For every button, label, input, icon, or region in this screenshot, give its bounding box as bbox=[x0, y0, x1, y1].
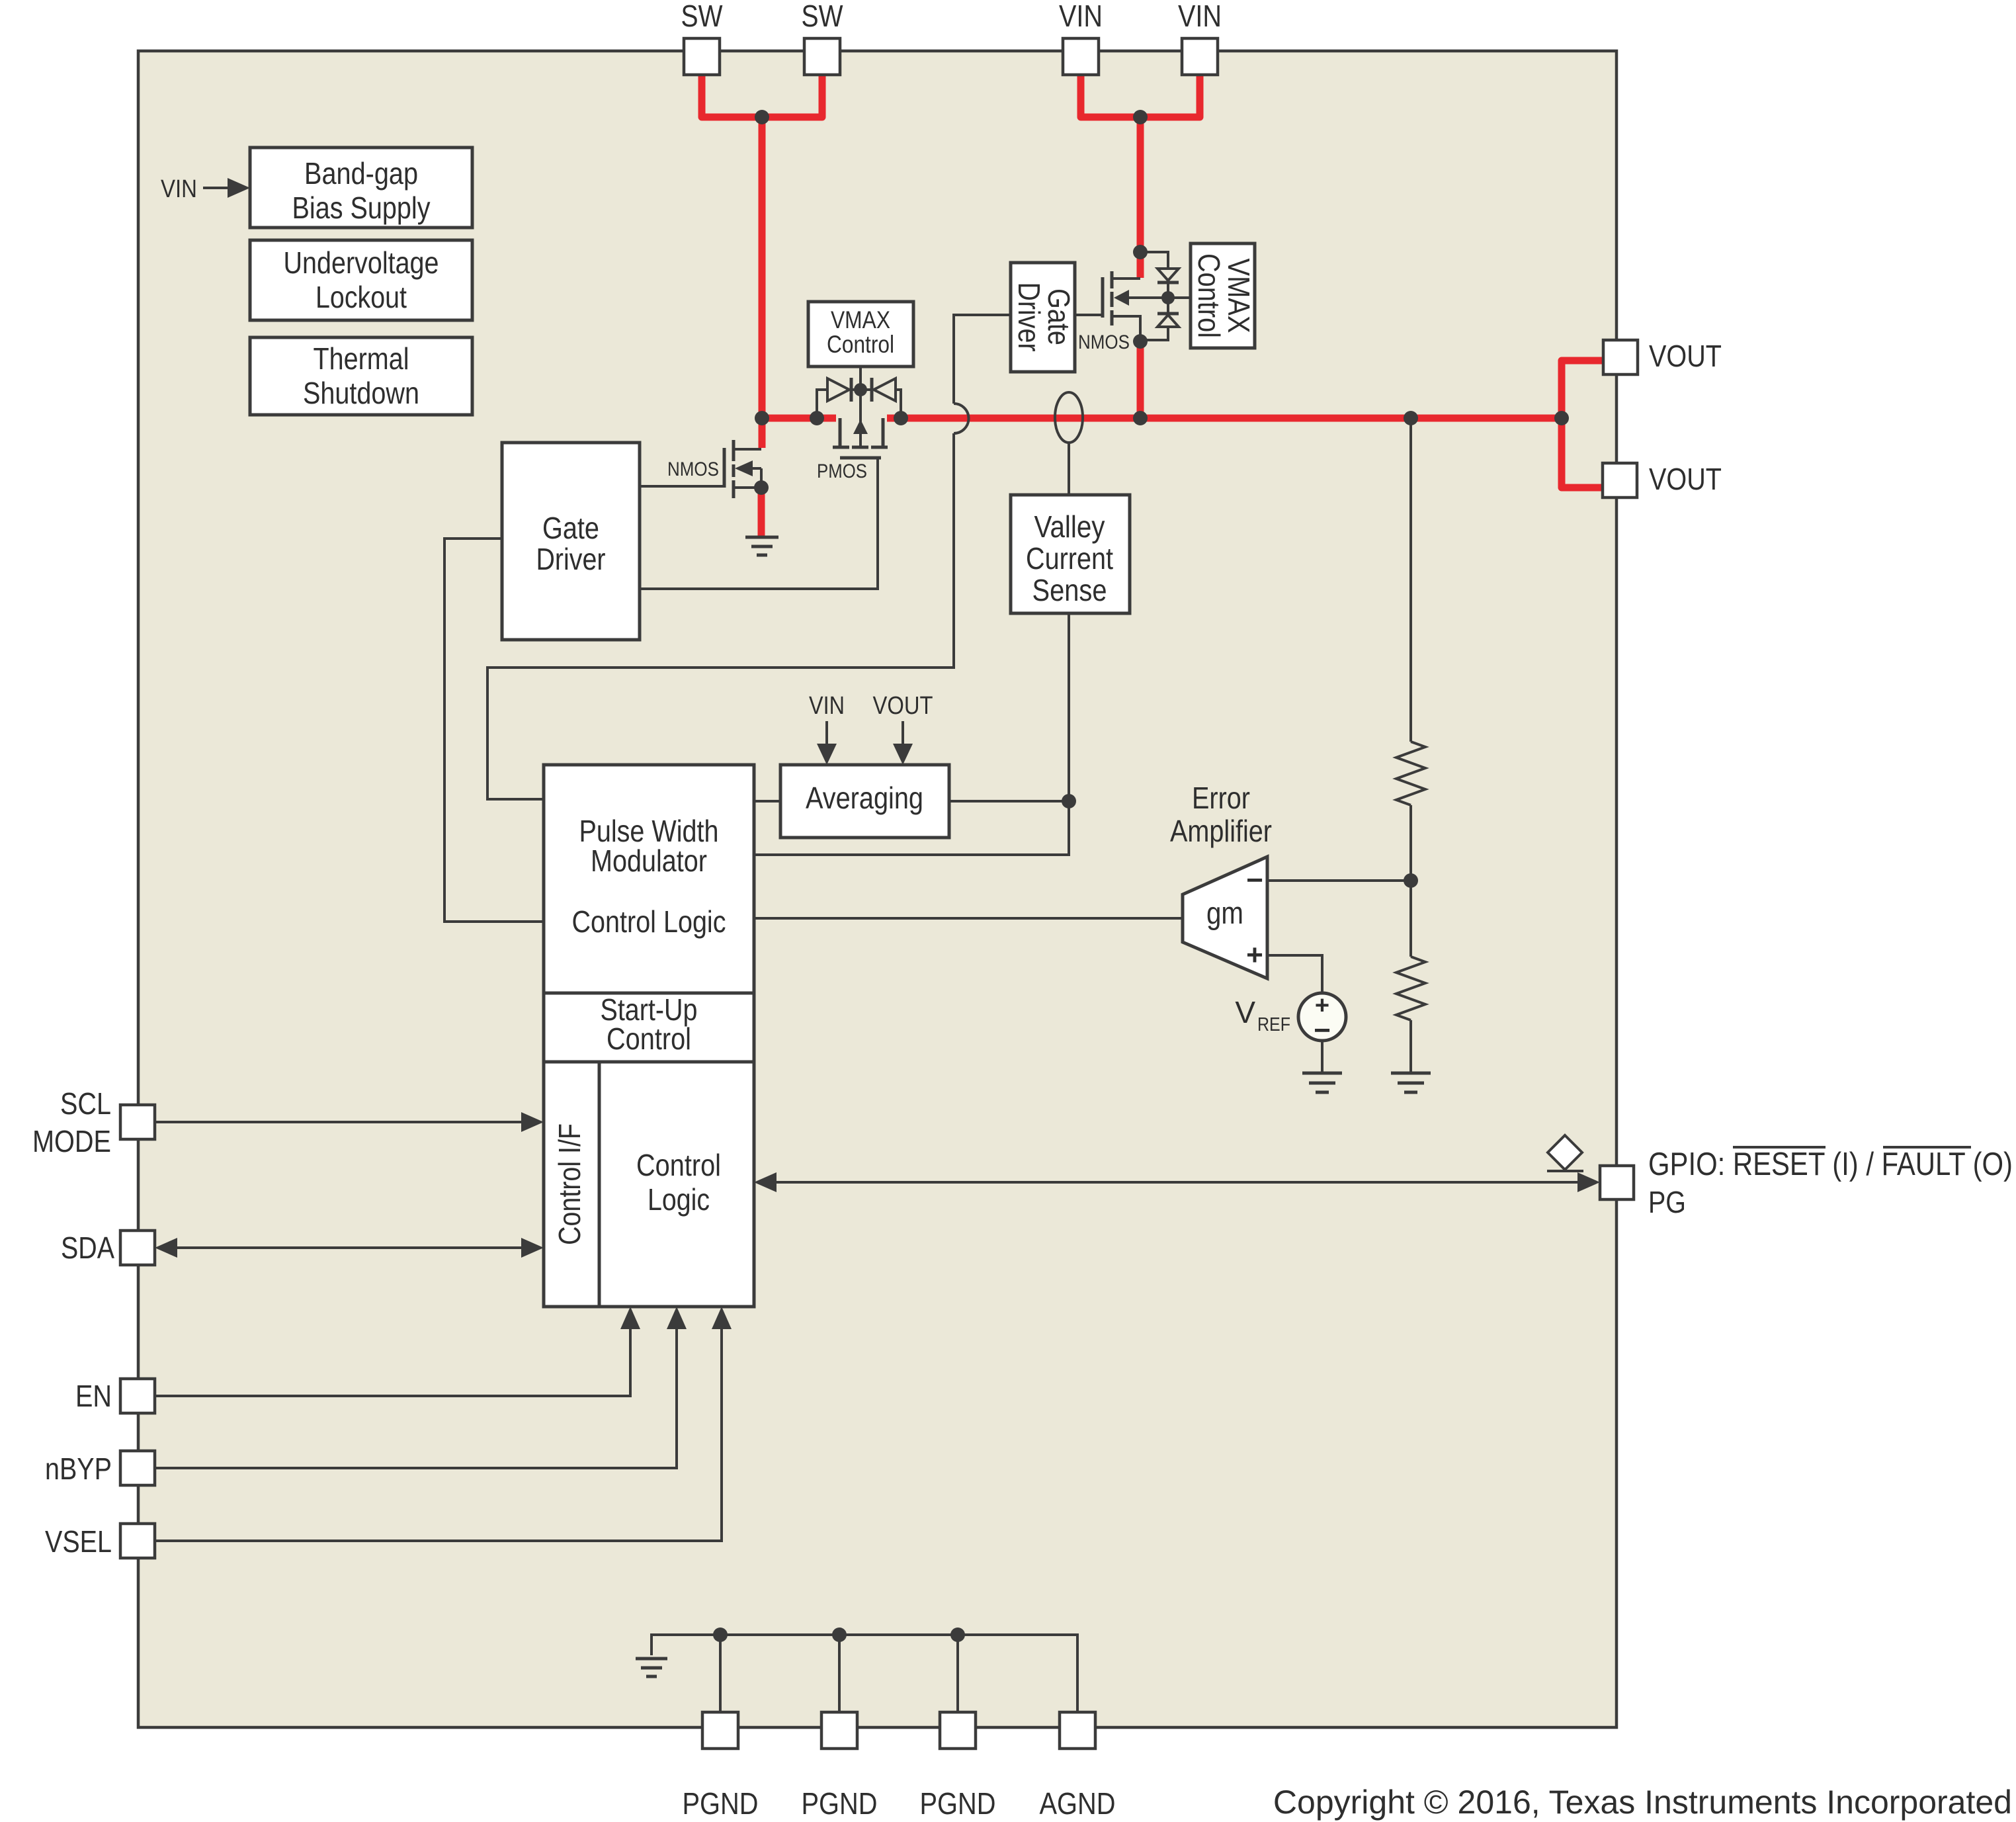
svg-text:Valley: Valley bbox=[1034, 509, 1105, 544]
svg-text:Driver: Driver bbox=[1012, 282, 1046, 352]
svg-text:Lockout: Lockout bbox=[315, 280, 407, 314]
svg-text:Control: Control bbox=[636, 1148, 721, 1182]
svg-text:Error: Error bbox=[1192, 781, 1250, 815]
svg-text:NMOS: NMOS bbox=[667, 458, 719, 480]
svg-text:VOUT: VOUT bbox=[1649, 462, 1722, 496]
svg-text:VOUT: VOUT bbox=[1649, 339, 1722, 373]
svg-text:PMOS: PMOS bbox=[817, 460, 867, 482]
svg-text:VIN: VIN bbox=[1059, 0, 1103, 33]
svg-text:Shutdown: Shutdown bbox=[303, 376, 419, 410]
svg-text:Modulator: Modulator bbox=[591, 844, 707, 878]
svg-text:VMAX: VMAX bbox=[831, 306, 890, 333]
svg-text:Current: Current bbox=[1026, 541, 1113, 576]
svg-text:PGND: PGND bbox=[920, 1786, 996, 1821]
svg-text:Control: Control bbox=[1192, 253, 1226, 338]
svg-text:Sense: Sense bbox=[1032, 573, 1107, 607]
svg-text:Control: Control bbox=[607, 1021, 691, 1056]
svg-text:NMOS: NMOS bbox=[1078, 331, 1130, 353]
svg-text:PG: PG bbox=[1648, 1185, 1686, 1219]
svg-text:Band-gap: Band-gap bbox=[304, 156, 418, 191]
svg-text:Copyright © 2016, Texas Instru: Copyright © 2016, Texas Instruments Inco… bbox=[1273, 1784, 2012, 1821]
svg-text:REF: REF bbox=[1257, 1014, 1290, 1035]
svg-text:Thermal: Thermal bbox=[314, 341, 409, 376]
svg-text:Averaging: Averaging bbox=[806, 781, 923, 815]
svg-text:Control: Control bbox=[827, 331, 894, 358]
svg-text:Driver: Driver bbox=[536, 542, 606, 576]
svg-text:−: − bbox=[1246, 864, 1263, 896]
svg-text:Logic: Logic bbox=[648, 1182, 710, 1217]
svg-text:VIN: VIN bbox=[161, 175, 197, 203]
svg-text:EN: EN bbox=[75, 1379, 112, 1413]
svg-text:+: + bbox=[1246, 939, 1263, 971]
svg-text:VIN: VIN bbox=[809, 692, 845, 720]
svg-text:VIN: VIN bbox=[1178, 0, 1222, 33]
svg-text:Control Logic: Control Logic bbox=[572, 904, 726, 939]
svg-text:Amplifier: Amplifier bbox=[1170, 814, 1272, 848]
svg-text:Control I/F: Control I/F bbox=[552, 1123, 587, 1245]
svg-text:MODE: MODE bbox=[32, 1124, 111, 1158]
svg-text:SW: SW bbox=[802, 0, 843, 33]
svg-text:AGND: AGND bbox=[1040, 1786, 1116, 1821]
svg-text:nBYP: nBYP bbox=[45, 1452, 112, 1486]
svg-text:Gate: Gate bbox=[542, 511, 599, 545]
svg-text:VOUT: VOUT bbox=[873, 692, 933, 720]
svg-text:SCL: SCL bbox=[60, 1086, 111, 1121]
svg-text:PGND: PGND bbox=[802, 1786, 878, 1821]
svg-text:SW: SW bbox=[681, 0, 723, 33]
svg-text:Undervoltage: Undervoltage bbox=[284, 245, 439, 280]
svg-text:VSEL: VSEL bbox=[45, 1524, 112, 1559]
svg-text:V: V bbox=[1235, 995, 1255, 1029]
svg-text:PGND: PGND bbox=[683, 1786, 759, 1821]
svg-text:SDA: SDA bbox=[61, 1231, 114, 1265]
svg-text:gm: gm bbox=[1206, 895, 1243, 930]
svg-text:GPIO: RESET (I) / FAULT (O): GPIO: RESET (I) / FAULT (O) bbox=[1648, 1147, 2013, 1182]
svg-text:Bias Supply: Bias Supply bbox=[292, 191, 431, 225]
